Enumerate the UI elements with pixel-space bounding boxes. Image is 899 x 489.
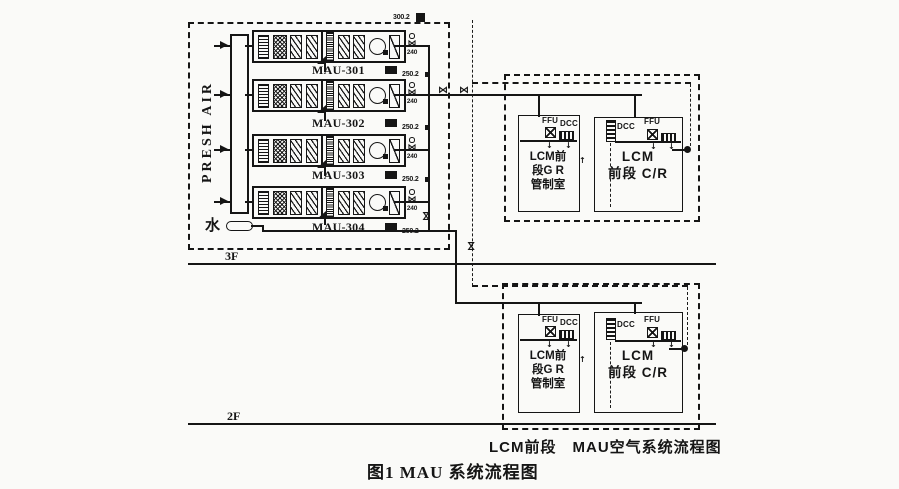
louver-filter-icon <box>258 35 269 59</box>
up-arrow-icon: ↑ <box>579 356 586 364</box>
hepa-strip-icon <box>326 32 334 61</box>
ffu-label: FFU <box>644 315 660 324</box>
branch-valve: ⋈ 240 <box>400 189 424 212</box>
mau-unit-301 <box>252 30 406 63</box>
print-smudge <box>416 13 425 22</box>
return-dashed-line <box>472 285 688 287</box>
valve-icon: ⋈ <box>420 211 430 221</box>
room-name: LCM 前段 C/R <box>596 148 680 182</box>
room-name-line: LCM <box>596 148 680 165</box>
return-dashed-line <box>687 287 688 345</box>
supply-trunk <box>428 45 430 232</box>
room-name: LCM前 段G R 管制室 <box>519 349 577 391</box>
duct-size-tag: 250.2 <box>402 124 419 131</box>
filter-strip-icon <box>606 318 616 340</box>
coil-icon <box>353 139 365 163</box>
terminal-dot <box>684 146 691 153</box>
coil-icon <box>306 35 318 59</box>
room-name-line: 段G R <box>519 363 577 377</box>
pipe-line <box>262 230 457 232</box>
figure-caption: 图1 MAU 系统流程图 <box>367 458 539 483</box>
dcc-label: DCC <box>617 320 635 329</box>
print-smudge <box>385 119 397 127</box>
coil-icon <box>306 139 318 163</box>
coil-icon <box>338 191 350 215</box>
mau-unit-304 <box>252 186 406 219</box>
ffu-fan-icon <box>545 127 556 138</box>
room-name: LCM前 段G R 管制室 <box>519 150 577 192</box>
water-label: 水 <box>205 214 220 235</box>
ffu-fan-icon <box>647 327 658 338</box>
coil-icon <box>306 191 318 215</box>
ffu-label: FFU <box>542 116 558 125</box>
down-arrow-icon: ↓ <box>565 341 572 349</box>
valve-icon: ⋈ <box>400 189 424 205</box>
dcc-label: DCC <box>560 318 578 327</box>
mau-unit-303 <box>252 134 406 167</box>
branch-valve: ⋈ 240 <box>400 33 424 56</box>
fresh-air-manifold <box>230 34 249 214</box>
fan-icon <box>369 194 386 211</box>
up-arrow-icon: ↑ <box>579 157 586 165</box>
coil-icon <box>306 84 318 108</box>
main-supply-line-2f <box>455 302 642 304</box>
ffu-label: FFU <box>542 315 558 324</box>
valve-icon: ⋈ <box>459 86 469 96</box>
coil-icon <box>353 84 365 108</box>
flow-label: 240 <box>400 49 424 56</box>
valve-icon: ⋈ <box>400 33 424 49</box>
ffu-label: FFU <box>644 117 660 126</box>
fresh-air-label: PRESH AIR <box>200 81 216 183</box>
floor-2f-label: 2F <box>227 409 240 424</box>
prefilter-icon <box>273 139 287 163</box>
down-arrow-icon: ↓ <box>546 341 553 349</box>
valve-icon: ⋈ <box>400 137 424 153</box>
fan-icon <box>369 38 386 55</box>
down-arrow-icon: ↓ <box>565 142 572 150</box>
dcc-unit-icon <box>661 331 676 340</box>
coil-icon <box>290 139 302 163</box>
return-dashed-line <box>690 84 691 146</box>
room-name-line: 前段 C/R <box>596 364 680 381</box>
coil-icon <box>290 84 302 108</box>
mau-system-flow-diagram: PRESH AIR MAU-301 250.2 ⋈ 240 MAU-302 25… <box>0 0 899 489</box>
louver-filter-icon <box>258 84 269 108</box>
diagram-subtitle: LCM前段 MAU空气系统流程图 <box>489 436 722 457</box>
supply-drop <box>634 94 636 117</box>
down-arrow-icon: ↓ <box>546 142 553 150</box>
dcc-unit-icon <box>559 131 574 140</box>
dcc-unit-icon <box>661 133 676 142</box>
coil-icon <box>338 84 350 108</box>
hepa-strip-icon <box>326 188 334 217</box>
supply-drop <box>538 94 540 117</box>
print-smudge <box>385 171 397 179</box>
room-name-line: 管制室 <box>519 377 577 391</box>
mau-unit-label: MAU-304 <box>312 220 365 235</box>
coil-icon <box>290 191 302 215</box>
room-name: LCM 前段 C/R <box>596 347 680 381</box>
fan-icon <box>369 142 386 159</box>
coil-icon <box>353 35 365 59</box>
mau-unit-302 <box>252 79 406 112</box>
room-name-line: 管制室 <box>519 178 577 192</box>
hepa-strip-icon <box>326 81 334 110</box>
mau-unit-label: MAU-303 <box>312 168 365 183</box>
dcc-label: DCC <box>560 119 578 128</box>
coil-icon <box>338 139 350 163</box>
duct-size-tag: 250.2 <box>402 71 419 78</box>
section-divider <box>321 32 323 61</box>
section-divider <box>321 136 323 165</box>
ffu-fan-icon <box>647 129 658 140</box>
valve-icon: ⋈ <box>465 241 475 251</box>
room-name-line: LCM前 <box>519 349 577 363</box>
print-smudge <box>385 66 397 74</box>
mau-unit-label: MAU-302 <box>312 116 365 131</box>
coil-icon <box>353 191 365 215</box>
fan-icon <box>369 87 386 104</box>
section-divider <box>321 81 323 110</box>
room-name-line: LCM前 <box>519 150 577 164</box>
room-name-line: 前段 C/R <box>596 165 680 182</box>
ffu-fan-icon <box>545 326 556 337</box>
valve-icon: ⋈ <box>438 86 448 96</box>
valve-icon: ⋈ <box>400 82 424 98</box>
filter-strip-icon <box>606 120 616 142</box>
floor-3f-label: 3F <box>225 249 238 264</box>
branch-valve: ⋈ 240 <box>400 137 424 160</box>
room-name-line: 段G R <box>519 164 577 178</box>
riser-to-2f <box>455 230 457 304</box>
section-divider <box>321 188 323 217</box>
prefilter-icon <box>273 35 287 59</box>
floor-3f-line <box>188 263 716 265</box>
mau-unit-label: MAU-301 <box>312 63 365 78</box>
hepa-strip-icon <box>326 136 334 165</box>
branch-valve: ⋈ 240 <box>400 82 424 105</box>
prefilter-icon <box>273 84 287 108</box>
duct-size-tag: 300.2 <box>393 14 410 21</box>
water-pipe-icon <box>226 221 253 231</box>
room-name-line: LCM <box>596 347 680 364</box>
louver-filter-icon <box>258 139 269 163</box>
coil-icon <box>290 35 302 59</box>
return-dashed-line <box>472 82 691 84</box>
flow-label: 240 <box>400 153 424 160</box>
louver-filter-icon <box>258 191 269 215</box>
dcc-unit-icon <box>559 330 574 339</box>
flow-label: 240 <box>400 98 424 105</box>
duct-size-tag: 250.2 <box>402 176 419 183</box>
dcc-label: DCC <box>617 122 635 131</box>
prefilter-icon <box>273 191 287 215</box>
coil-icon <box>338 35 350 59</box>
